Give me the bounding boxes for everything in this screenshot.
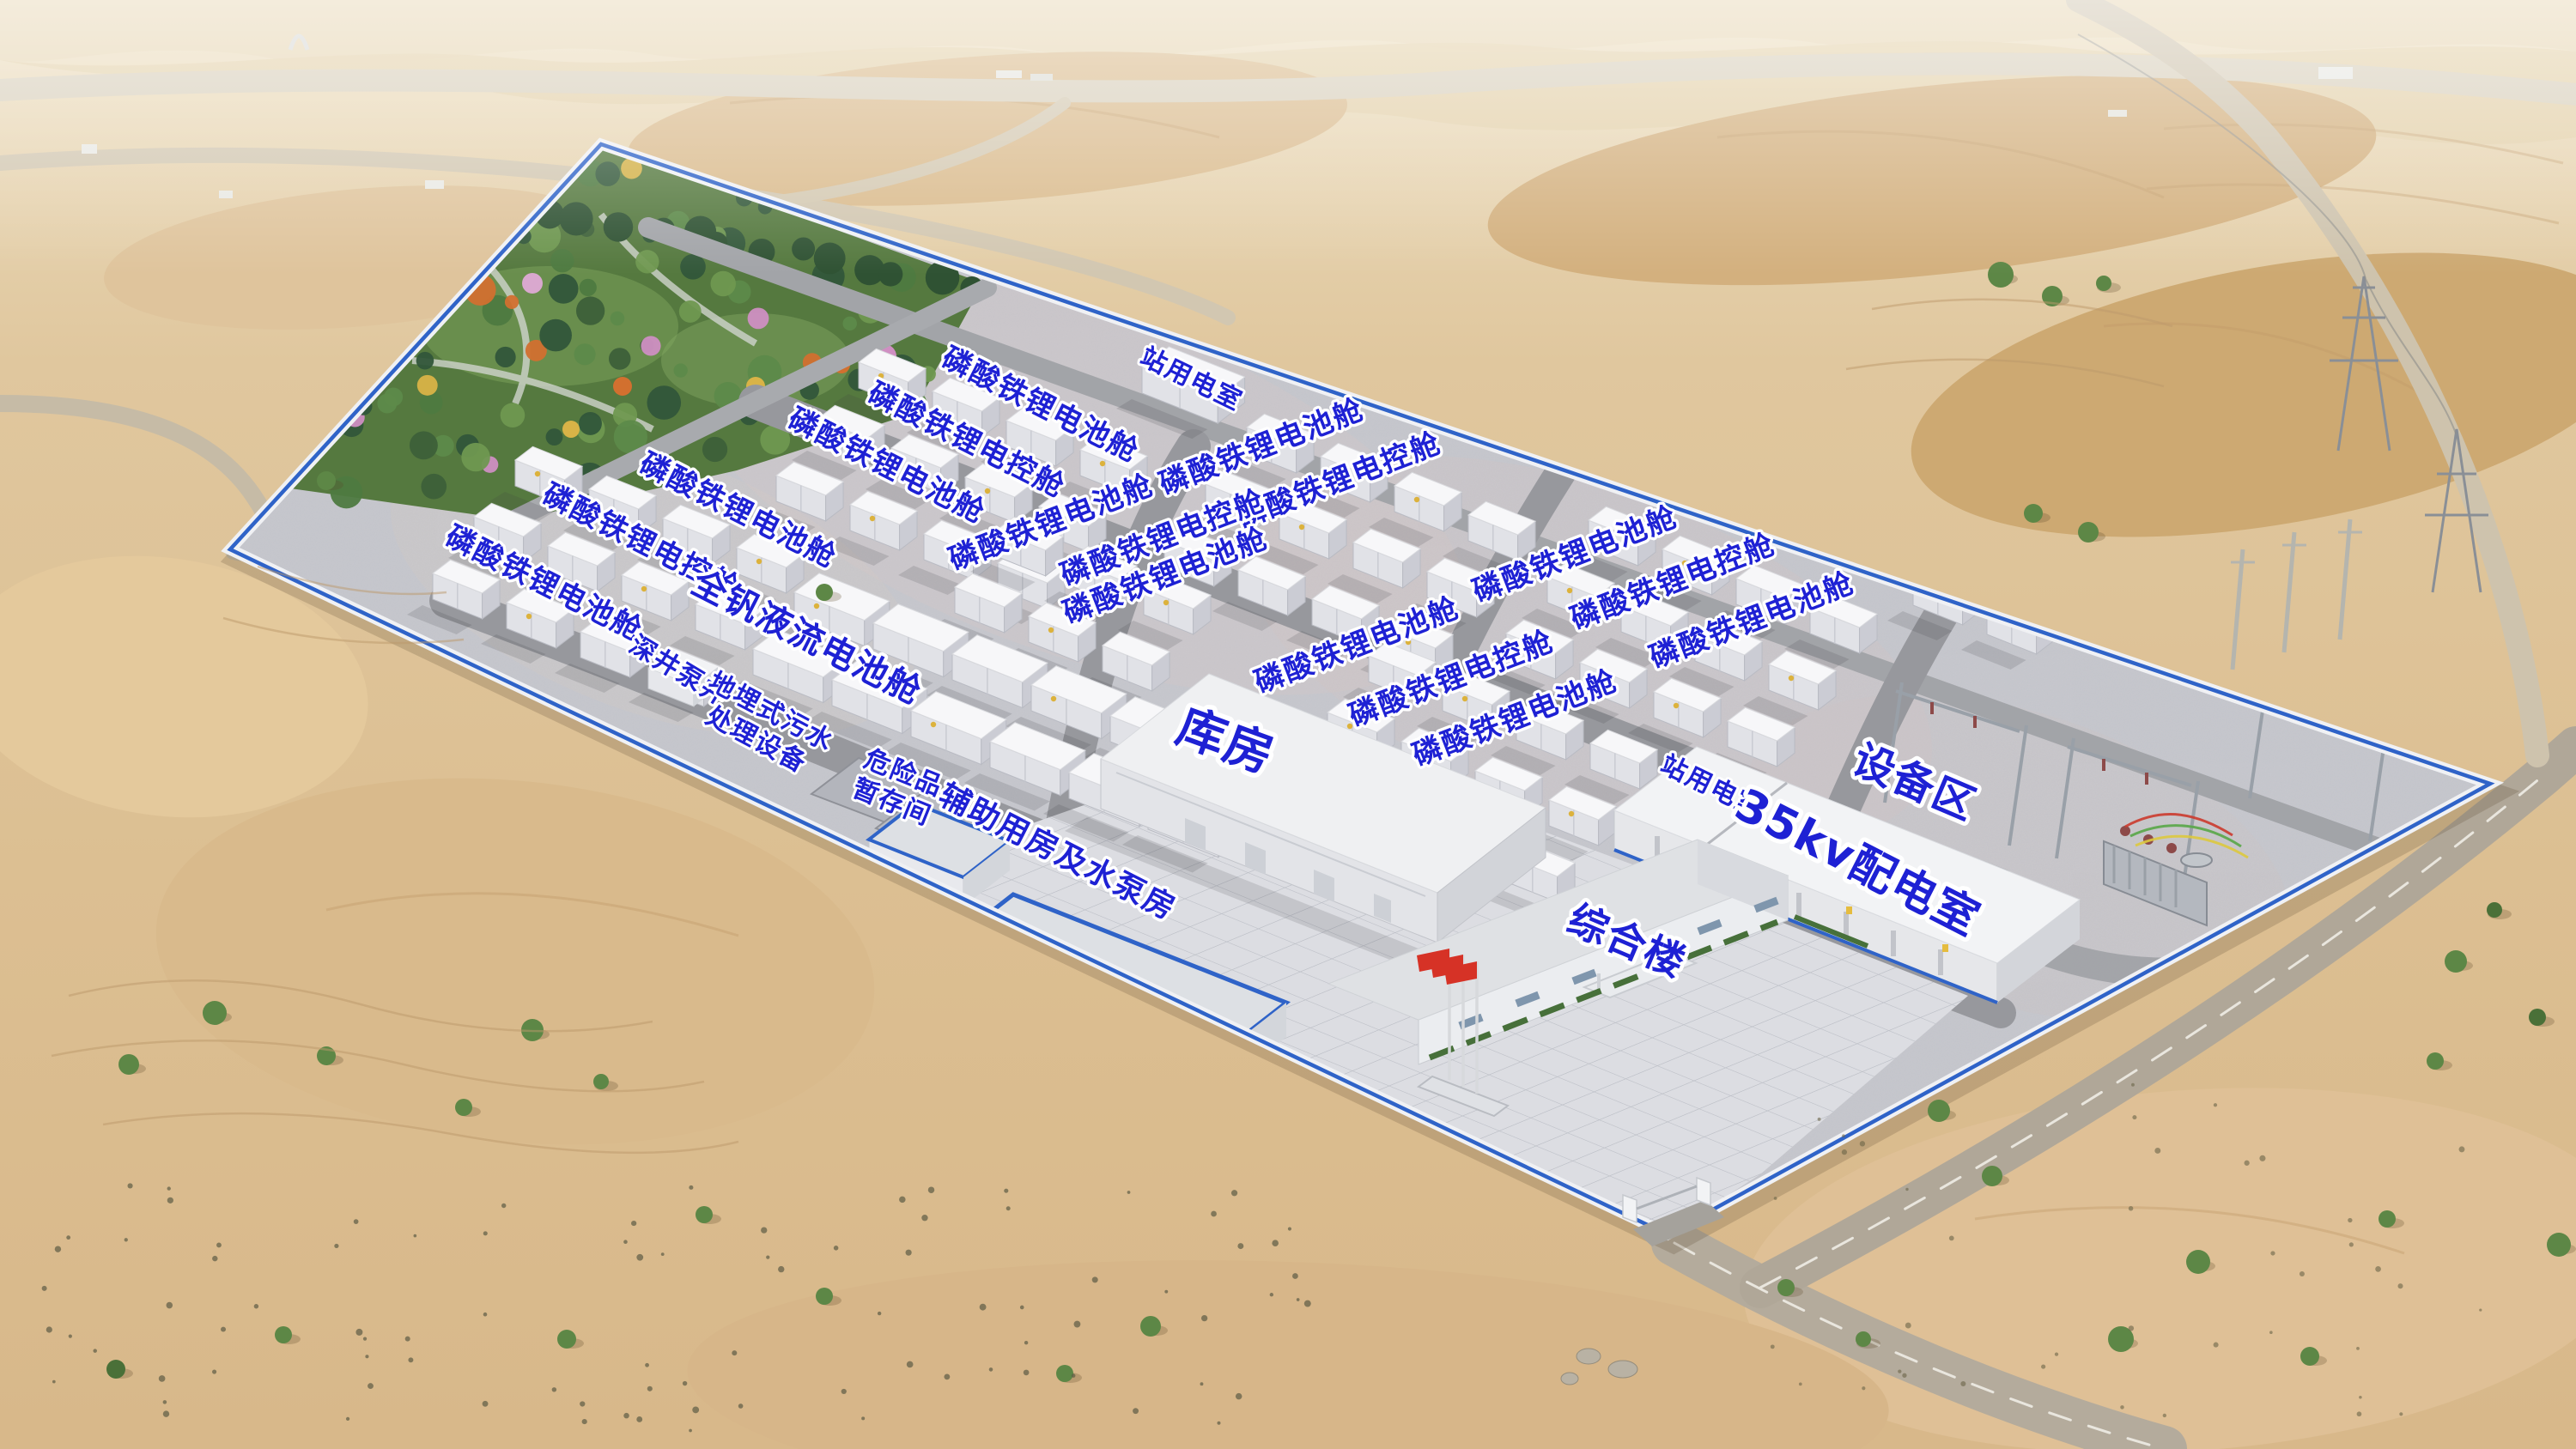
- tree-icon: [539, 319, 572, 352]
- tree-icon: [647, 385, 681, 420]
- shrub-icon: [816, 584, 833, 601]
- shrub-icon: [2445, 950, 2467, 973]
- shrub-icon: [106, 1360, 125, 1379]
- tree-icon: [549, 274, 579, 304]
- tree-icon: [702, 437, 727, 462]
- tree-icon: [461, 443, 489, 471]
- blossom-tree-icon: [562, 421, 580, 438]
- shrub-icon: [696, 1206, 713, 1223]
- shrub-icon: [2078, 522, 2099, 543]
- tree-icon: [421, 474, 447, 500]
- shrub-icon: [2487, 902, 2502, 918]
- shrub-icon: [1056, 1365, 1073, 1382]
- shrub-icon: [1928, 1100, 1950, 1122]
- shrub-icon: [317, 471, 336, 490]
- tree-icon: [410, 431, 438, 459]
- scene-canvas: 磷酸铁锂电池舱站用电室磷酸铁锂电控舱磷酸铁锂电池舱磷酸铁锂电池舱磷酸铁锂电控舱磷…: [0, 0, 2576, 1449]
- shrub-icon: [2300, 1347, 2319, 1366]
- tree-icon: [495, 347, 516, 367]
- shrub-icon: [1777, 1279, 1795, 1296]
- shrub-icon: [1982, 1166, 2002, 1186]
- tree-icon: [501, 403, 526, 427]
- shrub-icon: [2427, 1052, 2444, 1070]
- shrub-icon: [2186, 1250, 2210, 1274]
- tree-icon: [673, 363, 687, 377]
- tree-icon: [579, 412, 602, 435]
- shrub-icon: [2547, 1233, 2571, 1257]
- shrub-icon: [2024, 504, 2043, 523]
- shrub-icon: [1140, 1316, 1161, 1337]
- tree-icon: [710, 271, 735, 296]
- tree-icon: [679, 300, 702, 323]
- shrub-icon: [2096, 276, 2111, 291]
- tree-icon: [842, 317, 856, 330]
- shrub-icon: [1856, 1331, 1871, 1347]
- blossom-tree-icon: [613, 377, 632, 396]
- aerial-site-rendering: 磷酸铁锂电池舱站用电室磷酸铁锂电控舱磷酸铁锂电池舱磷酸铁锂电池舱磷酸铁锂电控舱磷…: [0, 0, 2576, 1449]
- tree-icon: [377, 394, 397, 414]
- shrub-icon: [816, 1288, 833, 1305]
- tree-icon: [611, 312, 625, 326]
- tree-icon: [574, 343, 595, 365]
- shrub-icon: [455, 1099, 472, 1116]
- tree-icon: [546, 428, 563, 446]
- shrub-icon: [593, 1074, 609, 1089]
- tree-icon: [576, 296, 605, 324]
- shrub-icon: [275, 1326, 292, 1343]
- tree-icon: [748, 307, 769, 329]
- shrub-icon: [203, 1001, 227, 1025]
- tree-icon: [505, 295, 519, 309]
- tree-icon: [641, 336, 660, 355]
- tree-icon: [416, 352, 434, 370]
- tree-icon: [609, 348, 631, 370]
- haze-overlay: [0, 0, 2576, 275]
- shrub-icon: [557, 1330, 576, 1349]
- shrub-icon: [2529, 1009, 2546, 1026]
- tree-icon: [417, 375, 438, 396]
- tree-icon: [580, 279, 597, 296]
- shrub-icon: [2379, 1210, 2396, 1228]
- shrub-icon: [118, 1054, 139, 1075]
- blossom-tree-icon: [522, 273, 543, 294]
